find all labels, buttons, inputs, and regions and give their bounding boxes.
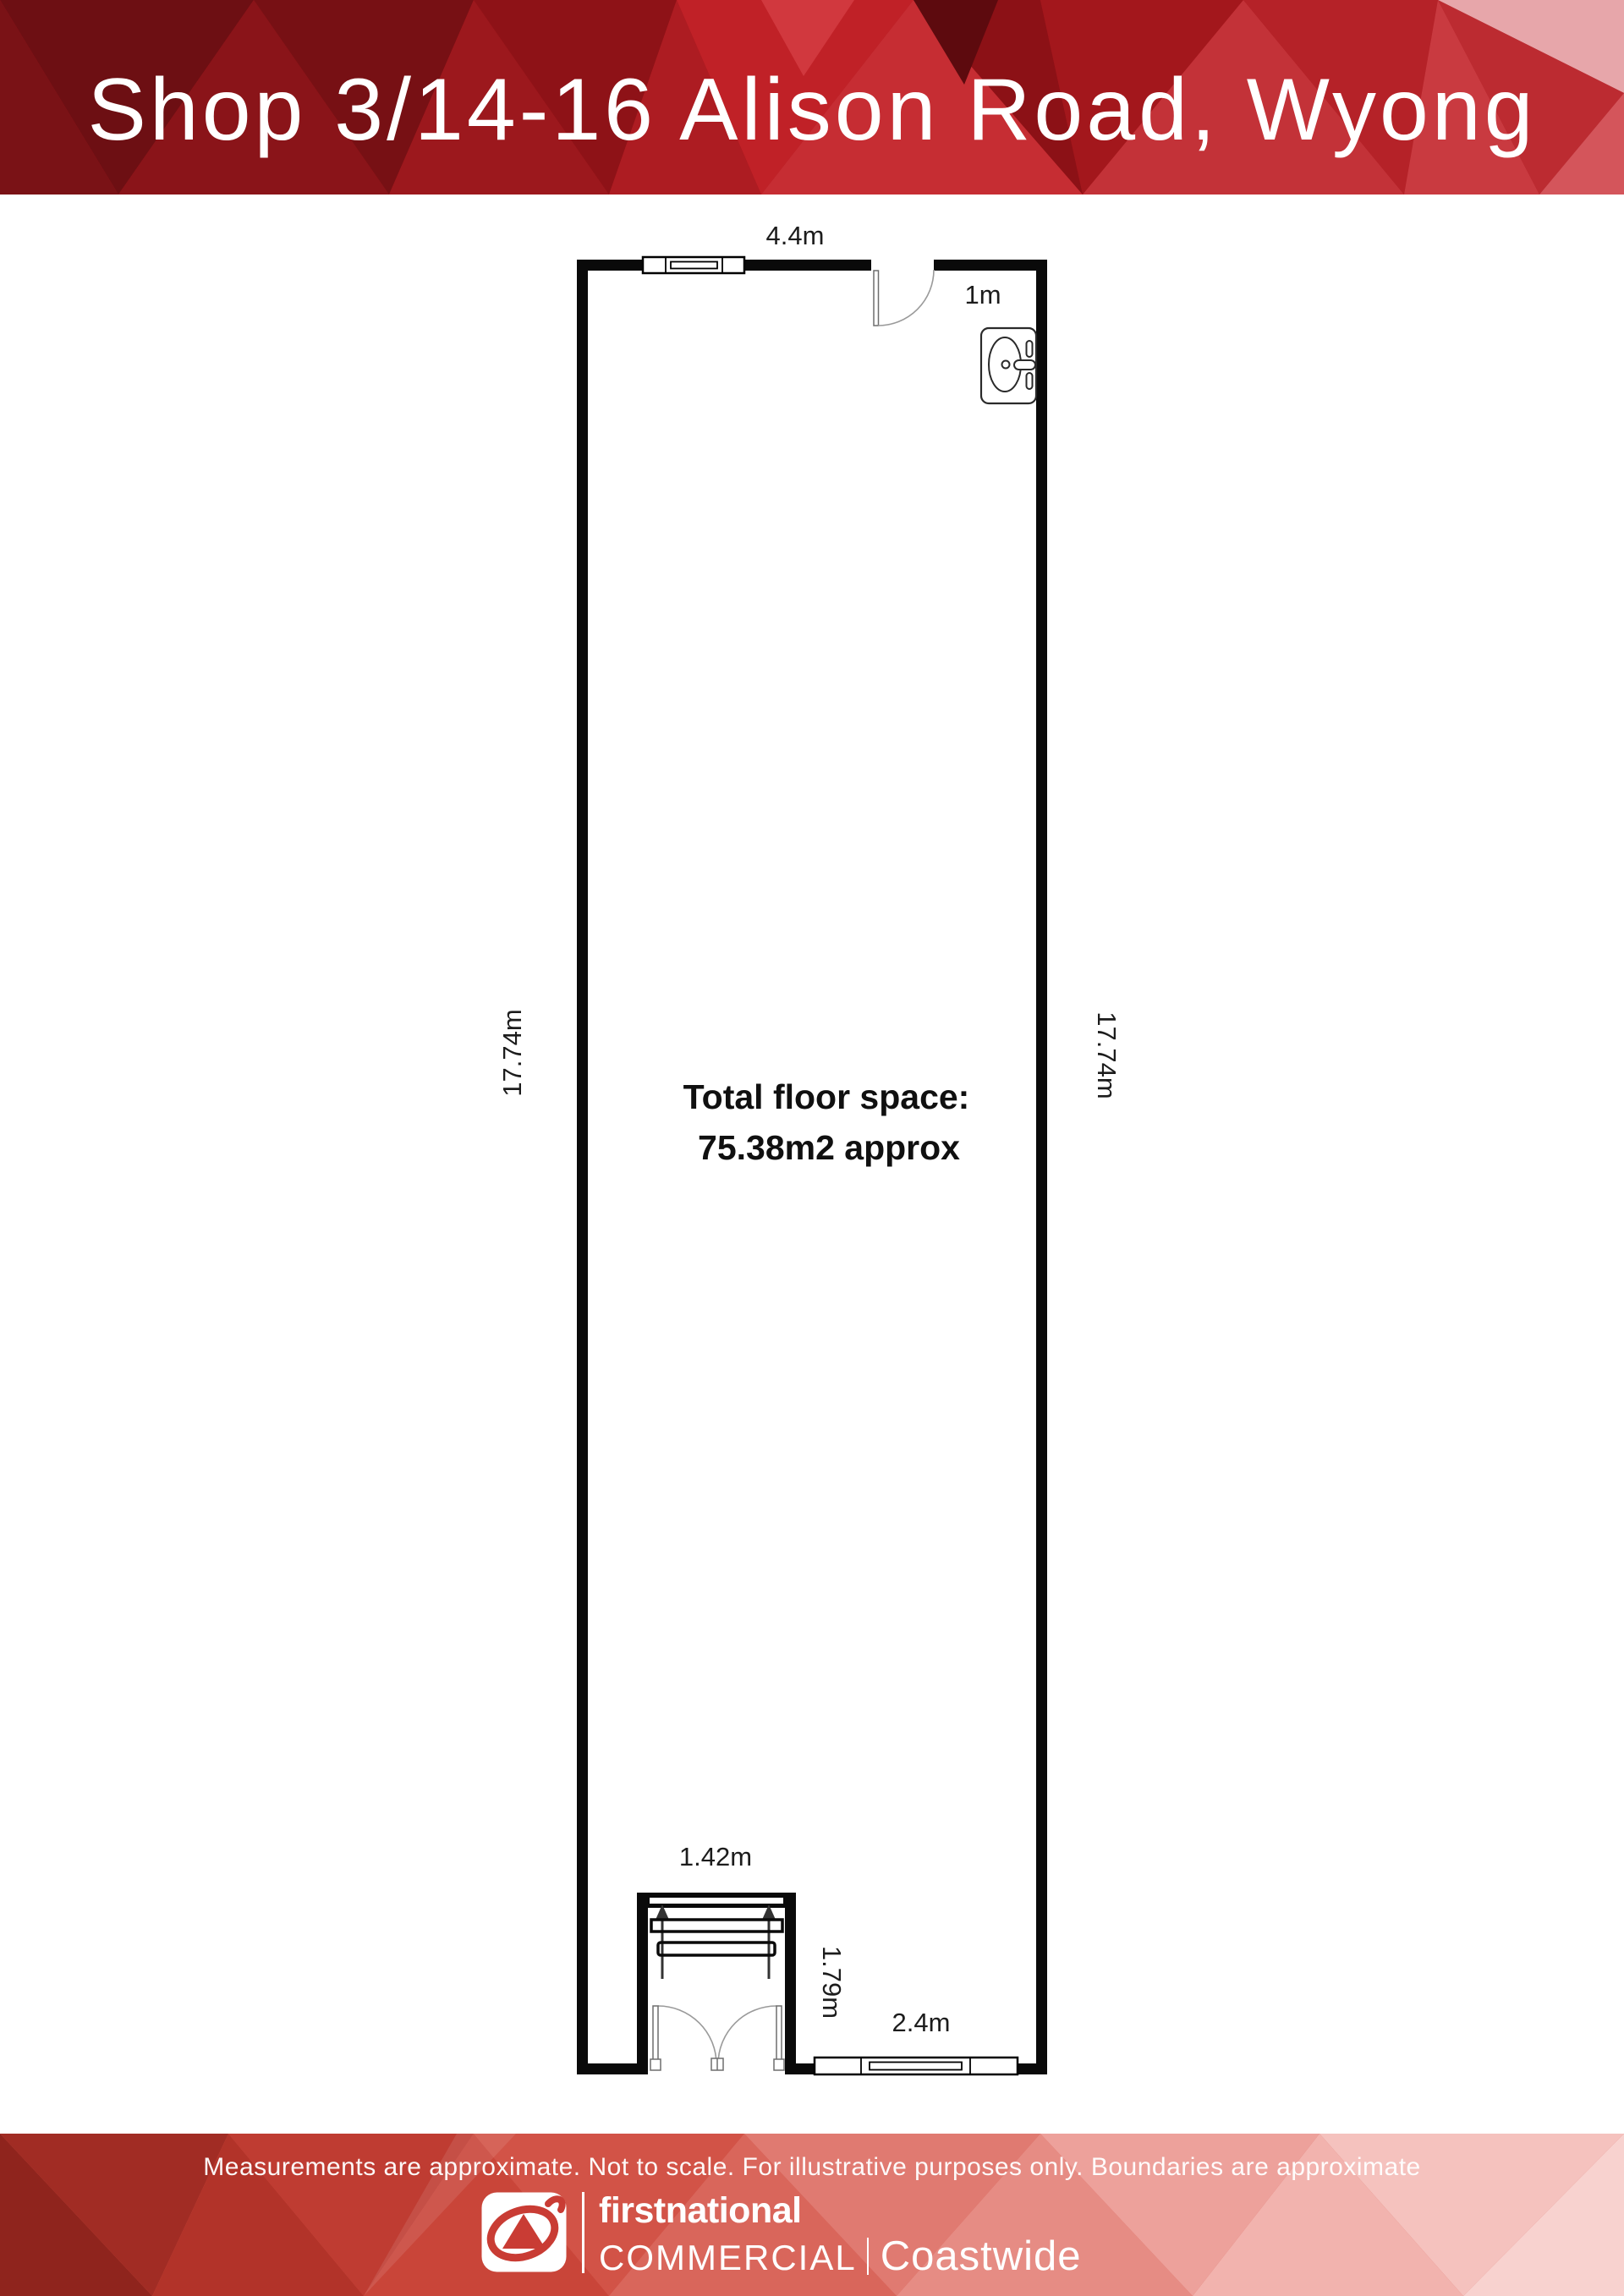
entry-header-stripe — [650, 1898, 783, 1904]
entry-pillar-left — [637, 1893, 648, 2074]
wall-top-mid-segment — [743, 260, 871, 271]
brand-division: COMMERCIAL — [599, 2238, 857, 2278]
top-window-icon — [643, 257, 744, 273]
entry-pillar-right — [785, 1893, 796, 2074]
brand-divider — [582, 2192, 584, 2273]
double-door-swing-icon — [650, 2006, 784, 2070]
dimension-top-width: 4.4m — [766, 221, 825, 250]
first-national-logo-icon — [480, 2191, 568, 2273]
dimension-entry-depth: 1.79m — [817, 1946, 847, 2019]
wall-bottom-right-segment — [1016, 2063, 1047, 2074]
wall-left — [577, 260, 588, 2074]
wall-top-left-segment — [577, 260, 645, 271]
total-floor-space-value: 75.38m2 approx — [698, 1128, 960, 1167]
brand-office: Coastwide — [881, 2233, 1082, 2280]
total-floor-space-label: Total floor space: — [683, 1077, 970, 1116]
dimension-labels: 4.4m 1m 17.74m 17.74m 1.42m 1.79m 2.4m T… — [497, 221, 1122, 2037]
walls — [577, 260, 1047, 2074]
wall-right — [1036, 260, 1047, 2074]
bottom-window-icon — [815, 2058, 1018, 2074]
header-banner: Shop 3/14-16 Alison Road, Wyong — [0, 0, 1624, 195]
brand-text-block: firstnational COMMERCIAL Coastwide — [599, 2191, 1081, 2280]
dimension-bottom-window: 2.4m — [892, 2008, 951, 2037]
basin-top-view-icon — [981, 328, 1036, 403]
brand-pipe-divider — [867, 2238, 869, 2275]
dimension-side-right: 17.74m — [1092, 1011, 1122, 1099]
dimension-door-width: 1m — [964, 280, 1001, 310]
wall-top-right-segment — [934, 260, 1047, 271]
footer-banner: Measurements are approximate. Not to sca… — [0, 2134, 1624, 2296]
brand-logo: firstnational COMMERCIAL Coastwide — [480, 2191, 1081, 2280]
dimension-side-left: 17.74m — [497, 1009, 527, 1096]
brand-second-line: COMMERCIAL Coastwide — [599, 2233, 1081, 2280]
dimension-entry-width: 1.42m — [679, 1842, 752, 1871]
entry-track-bars — [651, 1920, 782, 1955]
door-swing-arc-icon — [874, 270, 934, 326]
disclaimer-text: Measurements are approximate. Not to sca… — [0, 2153, 1624, 2182]
page-title: Shop 3/14-16 Alison Road, Wyong — [0, 0, 1624, 195]
floorplan-diagram: 4.4m 1m 17.74m 17.74m 1.42m 1.79m 2.4m T… — [0, 195, 1624, 2134]
brand-name: firstnational — [599, 2191, 1081, 2231]
floorplan-page: Shop 3/14-16 Alison Road, Wyong — [0, 0, 1624, 2296]
